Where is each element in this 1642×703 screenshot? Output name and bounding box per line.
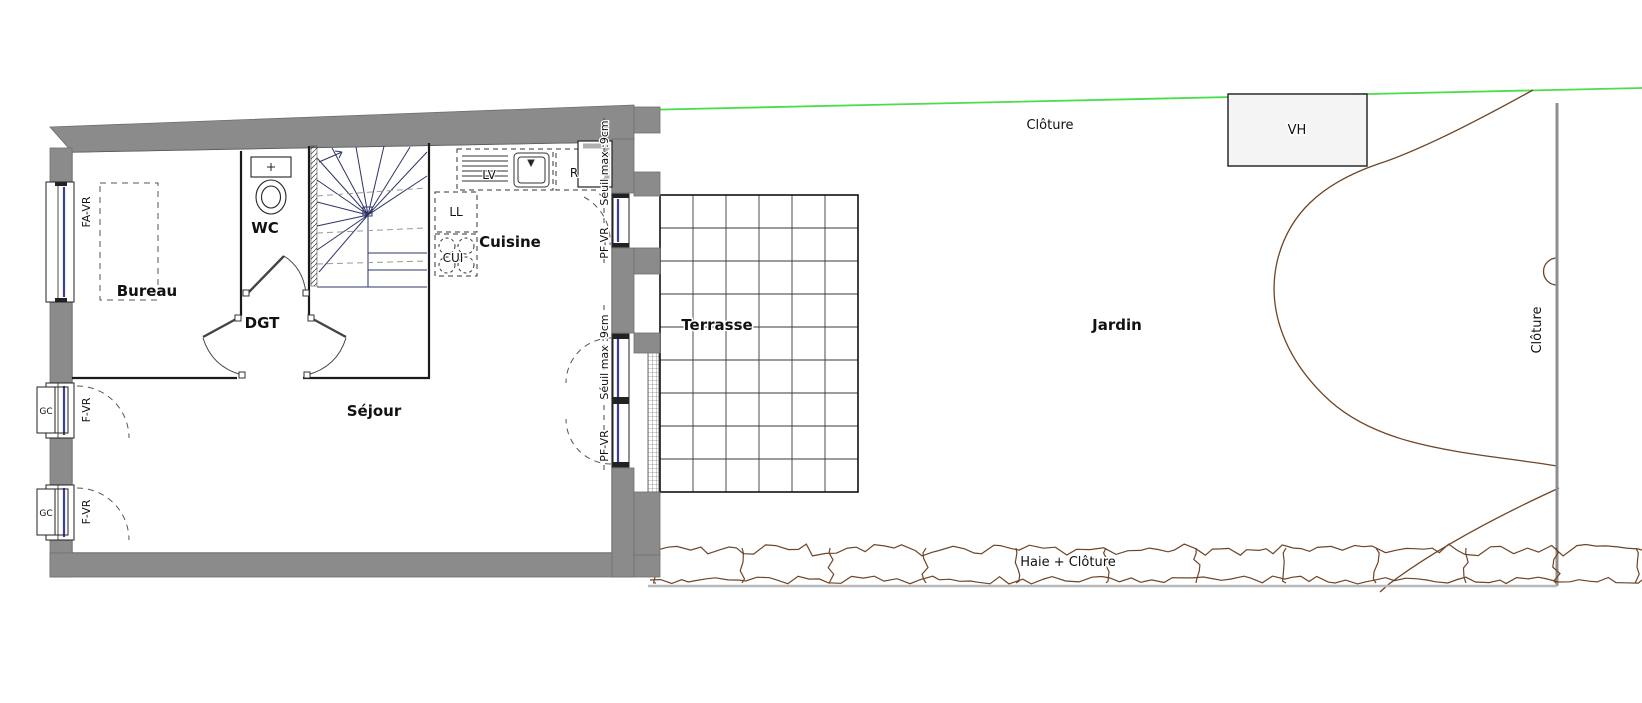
wall-left-1 <box>50 148 72 182</box>
wall-stub-2 <box>634 172 660 196</box>
opening-label-pf-vr-sejour: PF-VR <box>598 430 611 462</box>
wall-right-1 <box>612 139 634 193</box>
seuil-label-sejour: Séuil max :9cm <box>598 314 611 399</box>
room-label-jardin: Jardin <box>1091 316 1142 334</box>
hedge-label: Haie + Clôture <box>1020 555 1116 570</box>
seuil-label-kitchen: Séuil max :9cm <box>598 120 611 205</box>
wall-left-2 <box>50 302 72 383</box>
floor-plan: Bureau WC DGT Séjour Cuisine Terrasse Ja… <box>0 0 1642 703</box>
wall-left-3 <box>50 438 72 485</box>
opening-label-fa-vr: FA-VR <box>80 196 93 227</box>
appliance-label-lv: LV <box>482 168 496 182</box>
opening-label-pf-vr-kitchen: PF-VR <box>598 227 611 259</box>
wall-stub-1 <box>634 107 660 133</box>
appliance-label-cui: CUI <box>443 251 464 265</box>
opening-label-f-vr-lower: F-VR <box>80 499 93 524</box>
wall-right-3 <box>612 468 634 577</box>
threshold-strip <box>648 347 659 492</box>
room-label-cuisine: Cuisine <box>479 233 541 251</box>
room-label-wc: WC <box>251 219 279 237</box>
wall-stub-3 <box>634 248 660 274</box>
wall-bottom <box>50 553 660 577</box>
appliance-label-ll: LL <box>449 205 463 219</box>
wall-right-2 <box>612 248 634 333</box>
room-label-dgt: DGT <box>245 314 280 332</box>
toilet-bowl-inner <box>262 186 281 208</box>
floor-plan-svg: Bureau WC DGT Séjour Cuisine Terrasse Ja… <box>0 0 1642 703</box>
fence-right-label: Clôture <box>1530 306 1545 353</box>
vh-label: VH <box>1288 123 1307 138</box>
room-label-sejour: Séjour <box>347 402 402 420</box>
opening-label-gc-upper: GC <box>39 407 52 417</box>
room-label-bureau: Bureau <box>117 282 177 300</box>
opening-label-f-vr-upper: F-VR <box>80 397 93 422</box>
room-label-terrasse: Terrasse <box>681 316 752 334</box>
wall-stub-5 <box>634 492 660 555</box>
opening-label-gc-lower: GC <box>39 509 52 519</box>
stair-wall-hatch <box>311 146 317 286</box>
fence-top-label: Clôture <box>1026 118 1073 133</box>
wall-stub-4 <box>634 333 660 353</box>
appliance-label-r: R <box>570 166 578 180</box>
